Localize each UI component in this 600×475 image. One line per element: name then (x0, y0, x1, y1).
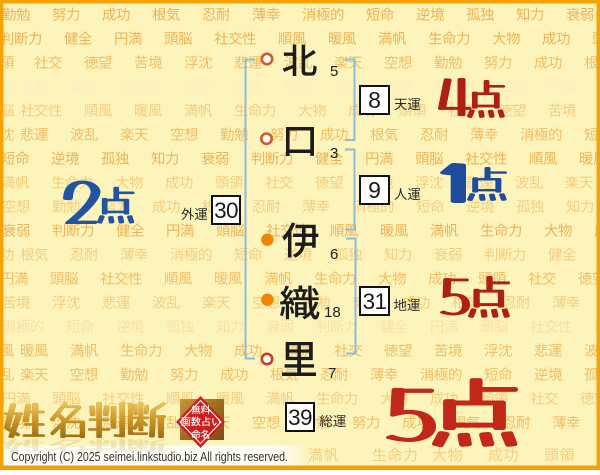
svg-text:39: 39 (288, 405, 312, 430)
svg-text:6: 6 (330, 246, 338, 263)
svg-text:5: 5 (330, 63, 338, 80)
svg-text:18: 18 (324, 304, 341, 321)
svg-text:Copyright (C) 2025 seimei.link: Copyright (C) 2025 seimei.linkstudio.biz… (11, 450, 288, 464)
svg-text:3: 3 (330, 145, 338, 162)
svg-text:30: 30 (214, 198, 238, 223)
svg-text:7: 7 (328, 365, 336, 382)
svg-text:31: 31 (363, 289, 387, 314)
svg-text:9: 9 (368, 177, 381, 203)
svg-text:8: 8 (368, 87, 381, 113)
